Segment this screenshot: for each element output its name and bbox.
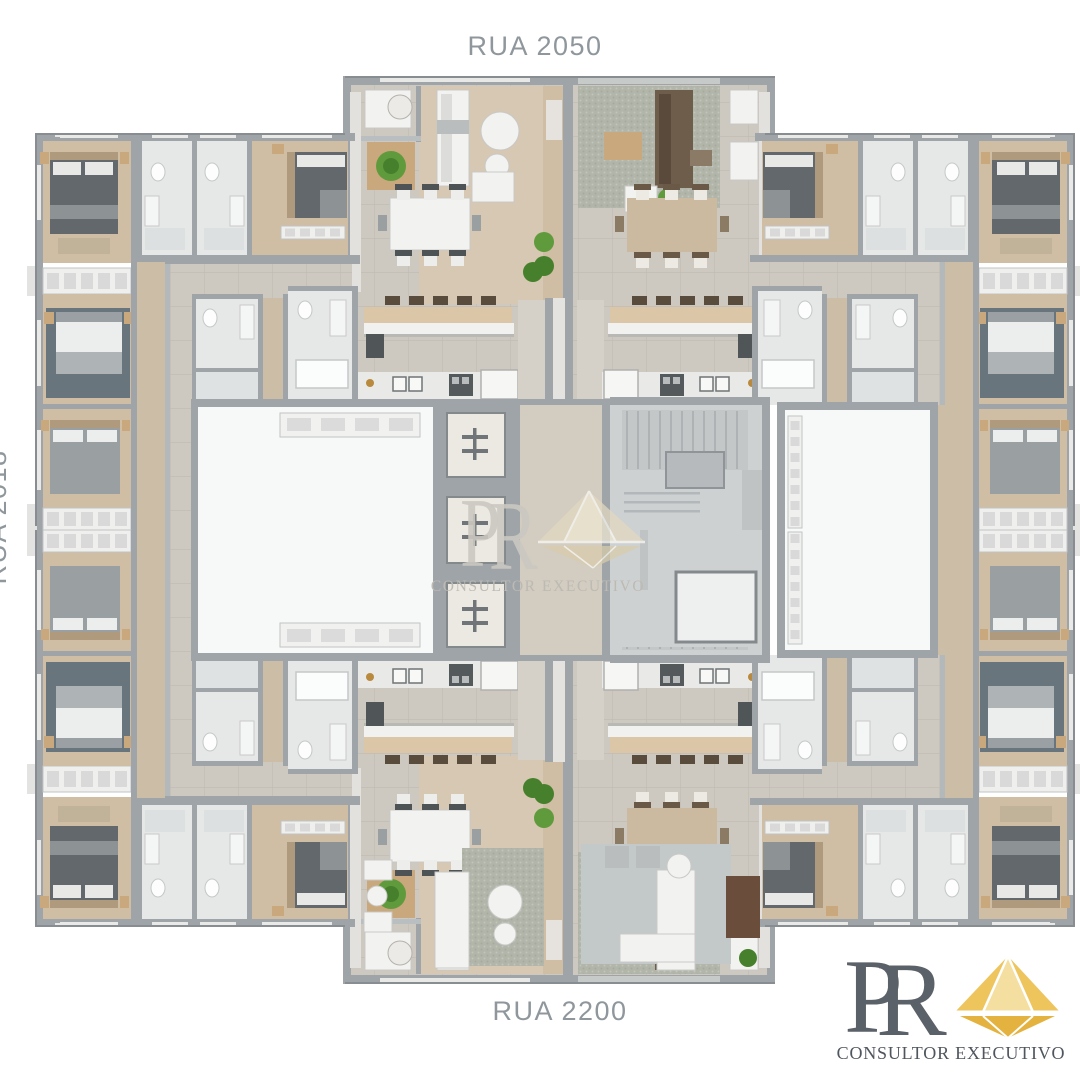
svg-text:CONSULTOR EXECUTIVO: CONSULTOR EXECUTIVO — [837, 1043, 1066, 1063]
svg-text:R: R — [876, 941, 947, 1058]
svg-text:CONSULTOR EXECUTIVO: CONSULTOR EXECUTIVO — [431, 578, 645, 595]
svg-text:RUA 2050: RUA 2050 — [467, 31, 602, 61]
svg-text:RUA 2200: RUA 2200 — [492, 996, 627, 1026]
svg-text:RUA 2018: RUA 2018 — [0, 449, 12, 584]
svg-text:R: R — [489, 480, 538, 590]
